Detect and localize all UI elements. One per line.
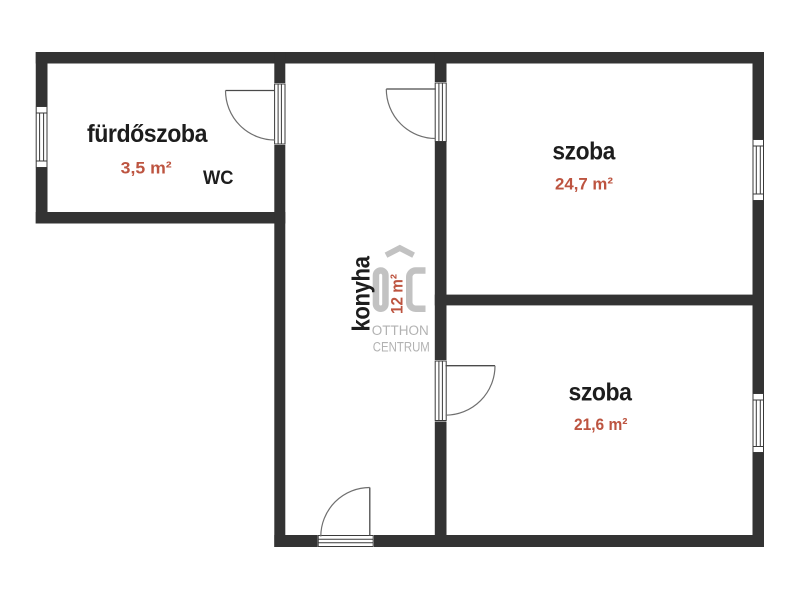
svg-text:OTTHON: OTTHON — [372, 323, 429, 338]
svg-text:21,6 m²: 21,6 m² — [574, 416, 628, 434]
svg-text:szoba: szoba — [552, 138, 616, 166]
svg-text:szoba: szoba — [569, 379, 633, 407]
svg-text:fürdőszoba: fürdőszoba — [87, 120, 208, 148]
svg-text:3,5 m²: 3,5 m² — [121, 160, 173, 178]
svg-text:12 m²: 12 m² — [389, 274, 407, 314]
svg-text:CENTRUM: CENTRUM — [373, 340, 430, 355]
svg-text:WC: WC — [203, 168, 234, 189]
svg-text:24,7 m²: 24,7 m² — [555, 176, 614, 194]
svg-text:konyha: konyha — [347, 255, 375, 331]
